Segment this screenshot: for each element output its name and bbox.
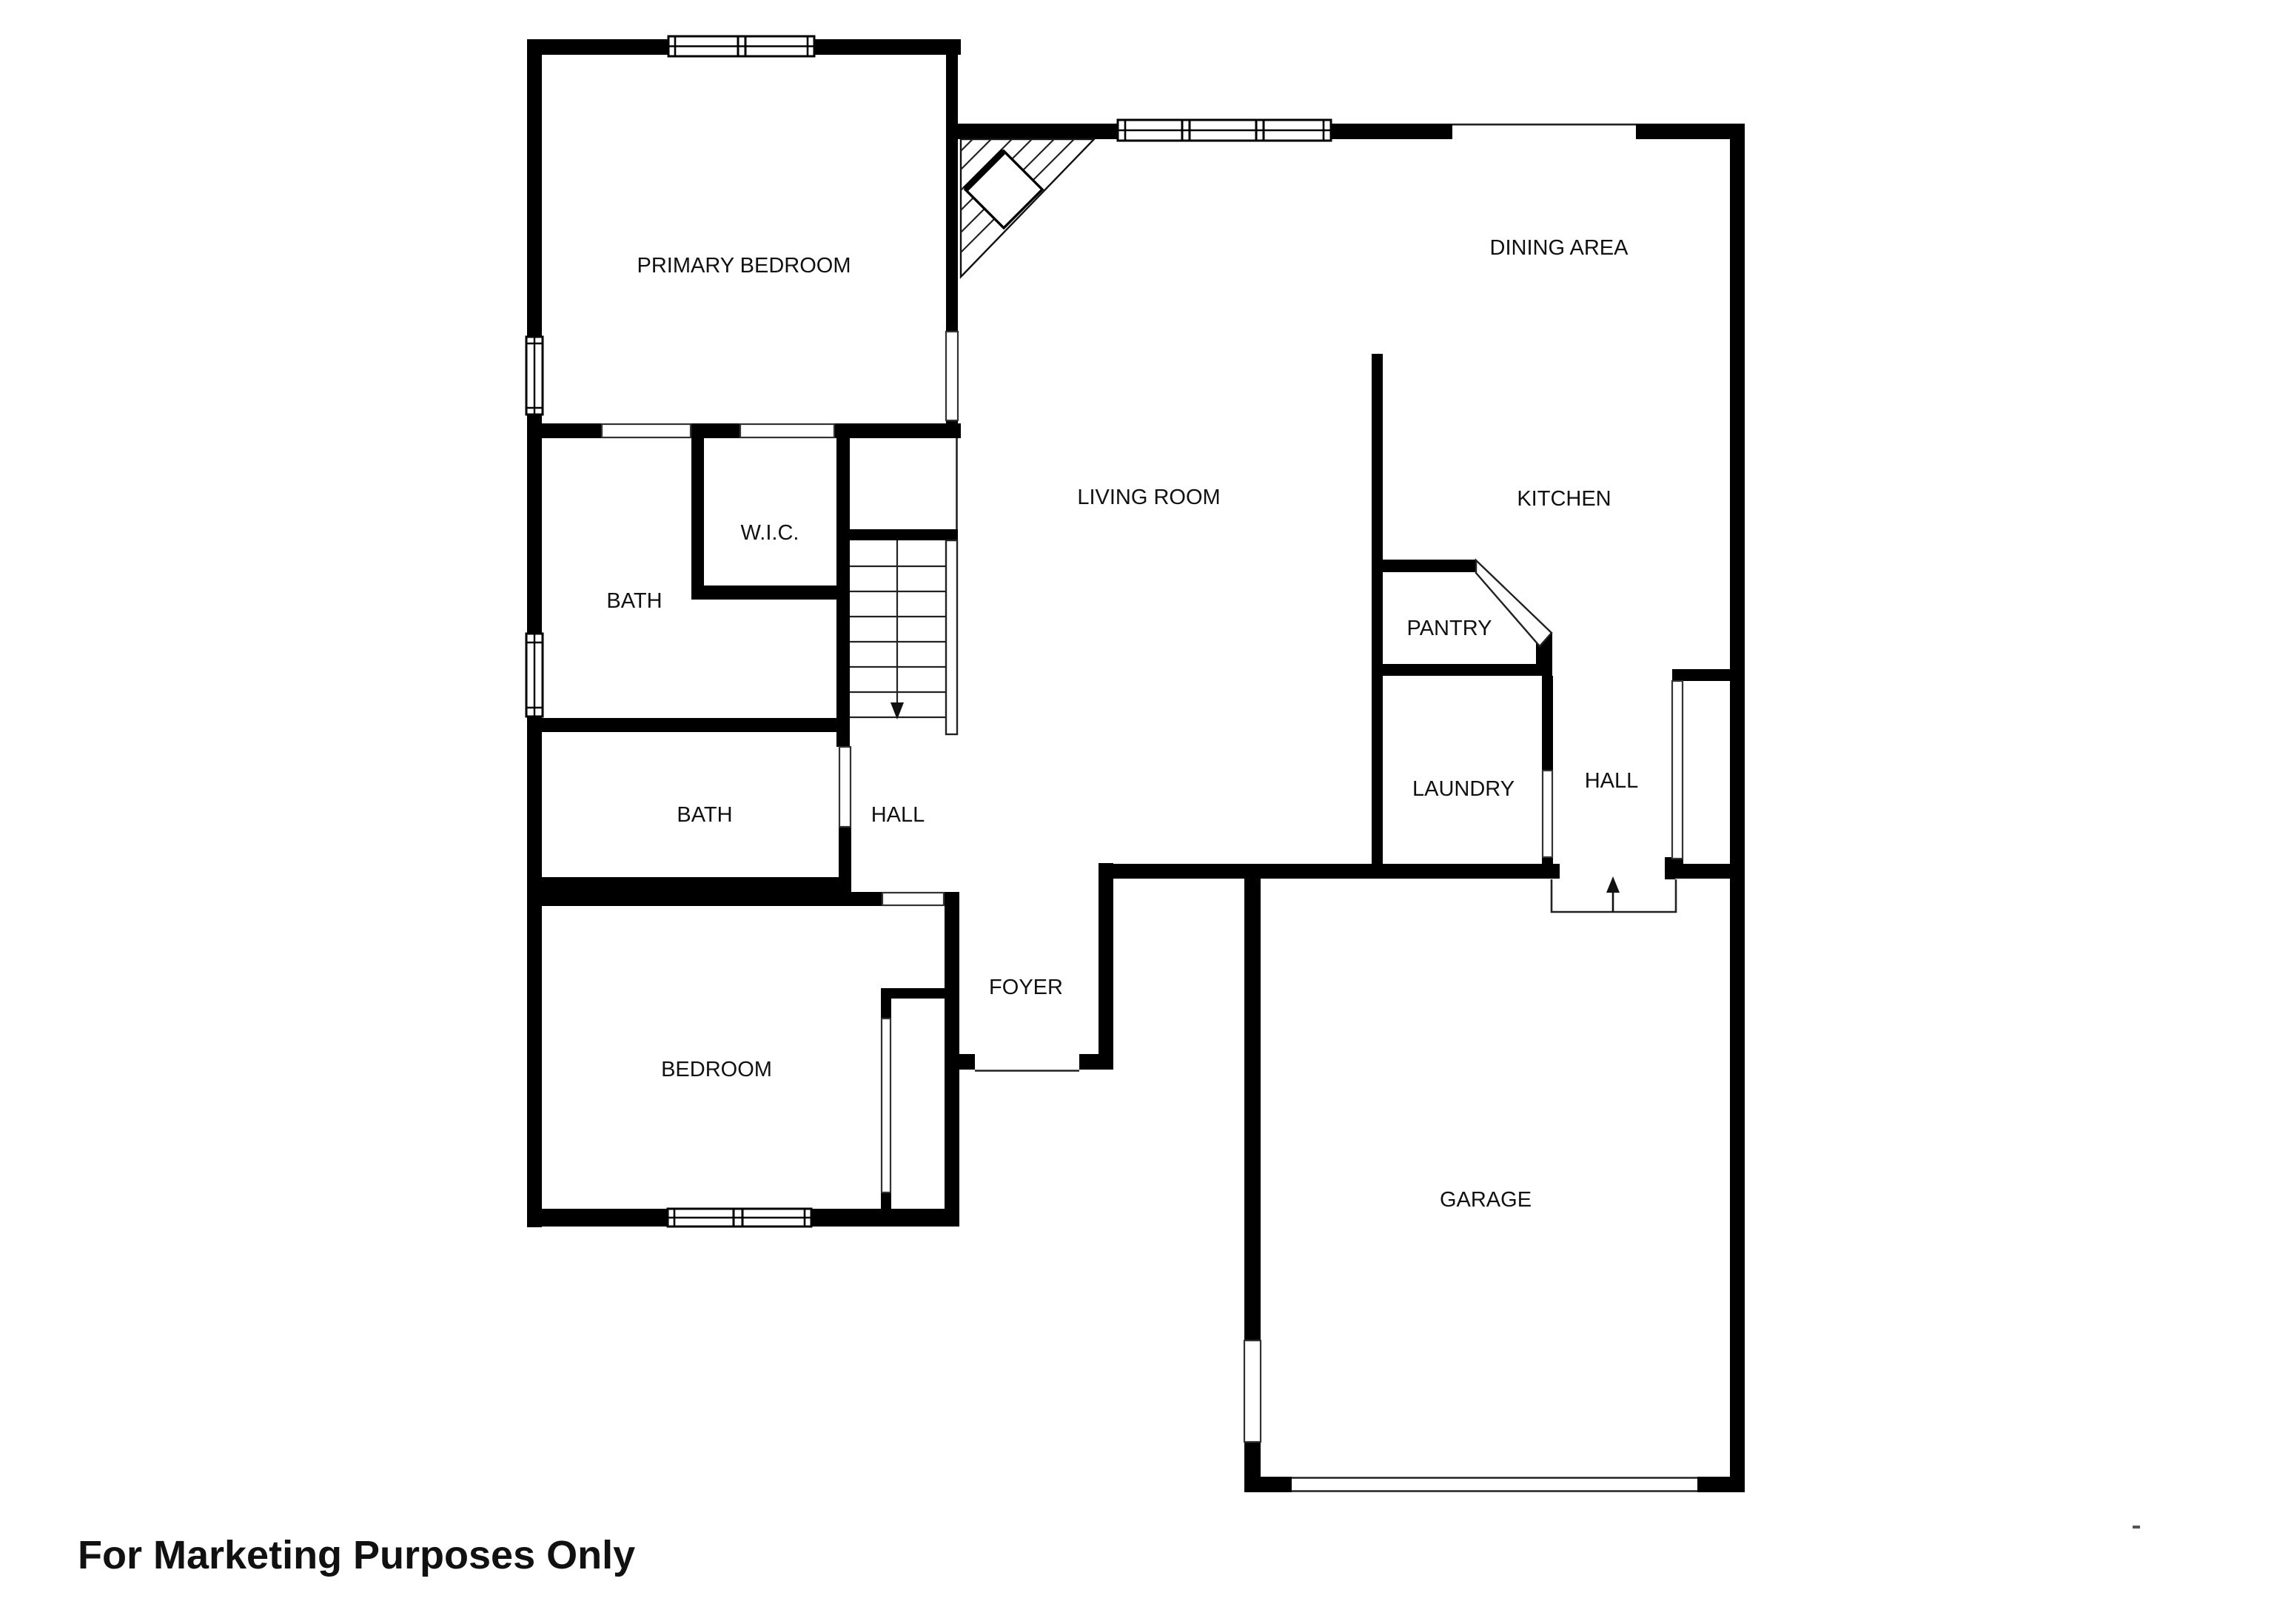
svg-text:PANTRY: PANTRY [1407, 617, 1492, 640]
svg-text:W.I.C.: W.I.C. [741, 521, 799, 545]
svg-text:DINING AREA: DINING AREA [1490, 236, 1629, 260]
svg-text:HALL: HALL [871, 803, 925, 827]
svg-text:HALL: HALL [1585, 769, 1639, 793]
svg-text:PRIMARY BEDROOM: PRIMARY BEDROOM [637, 254, 851, 278]
svg-text:FOYER: FOYER [989, 976, 1063, 999]
svg-text:BATH: BATH [606, 589, 662, 613]
svg-text:LAUNDRY: LAUNDRY [1412, 777, 1515, 801]
svg-text:BATH: BATH [677, 803, 732, 827]
svg-text:KITCHEN: KITCHEN [1517, 487, 1611, 511]
svg-text:BEDROOM: BEDROOM [661, 1058, 772, 1081]
svg-text:For Marketing Purposes Only: For Marketing Purposes Only [78, 1533, 635, 1577]
svg-text:GARAGE: GARAGE [1440, 1188, 1532, 1212]
svg-text:LIVING ROOM: LIVING ROOM [1077, 486, 1220, 509]
